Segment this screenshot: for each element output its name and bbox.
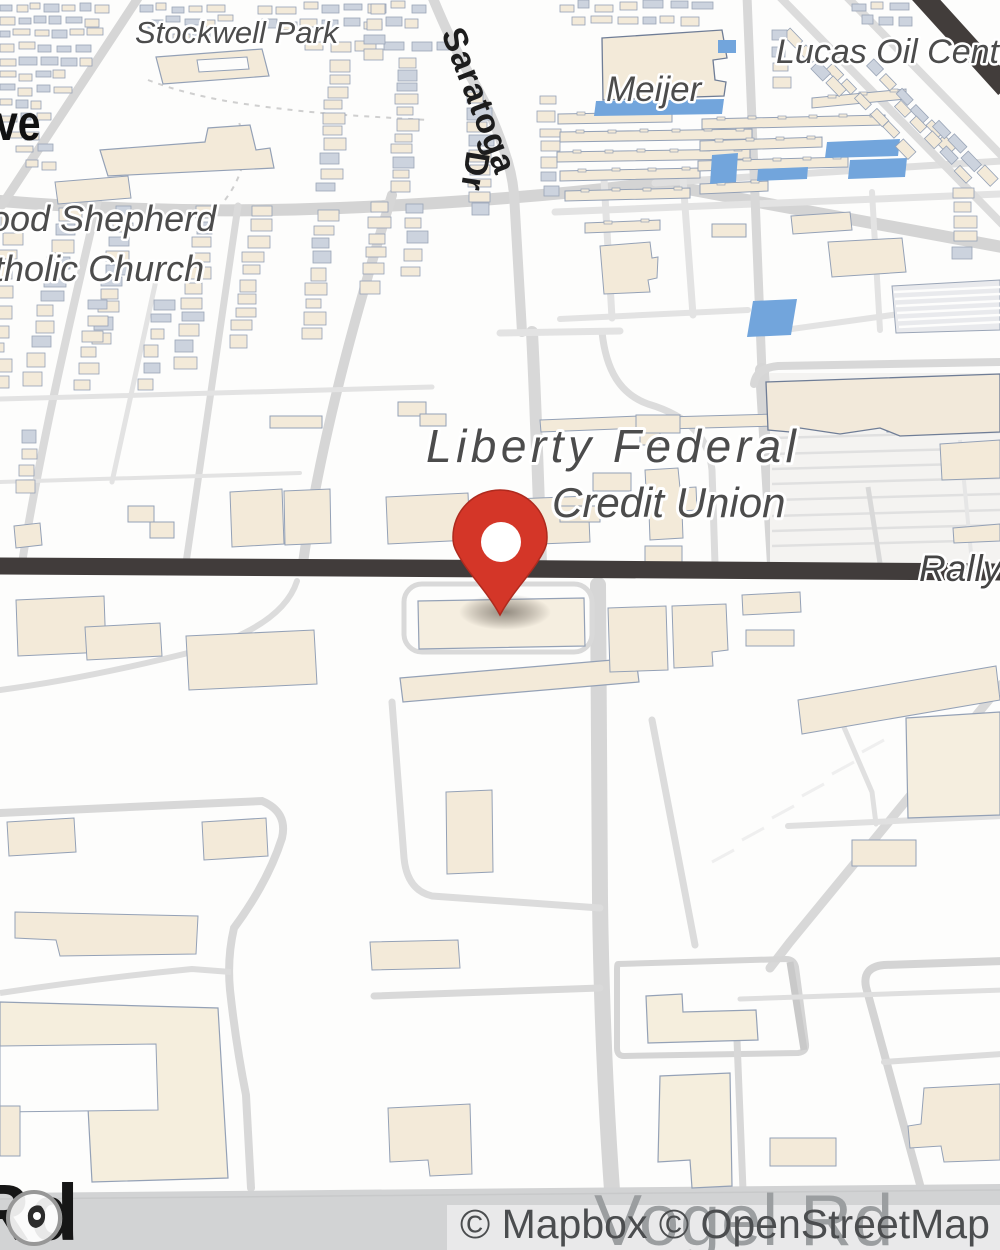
svg-text:Credit Union: Credit Union (552, 479, 785, 526)
svg-text:© Mapbox © OpenStreetMap: © Mapbox © OpenStreetMap (460, 1201, 990, 1247)
svg-text:Meijer: Meijer (606, 70, 703, 109)
svg-text:Rally: Rally (919, 548, 1000, 589)
svg-text:ve: ve (0, 95, 41, 151)
svg-text:Stockwell Park: Stockwell Park (135, 15, 340, 50)
svg-text:Dr: Dr (453, 149, 497, 194)
svg-text:Catholic Church: Catholic Church (0, 248, 204, 289)
svg-text:Good Shepherd: Good Shepherd (0, 198, 217, 239)
svg-text:Lucas Oil Cente: Lucas Oil Cente (776, 33, 1000, 71)
svg-text:Liberty Federal: Liberty Federal (426, 420, 800, 472)
